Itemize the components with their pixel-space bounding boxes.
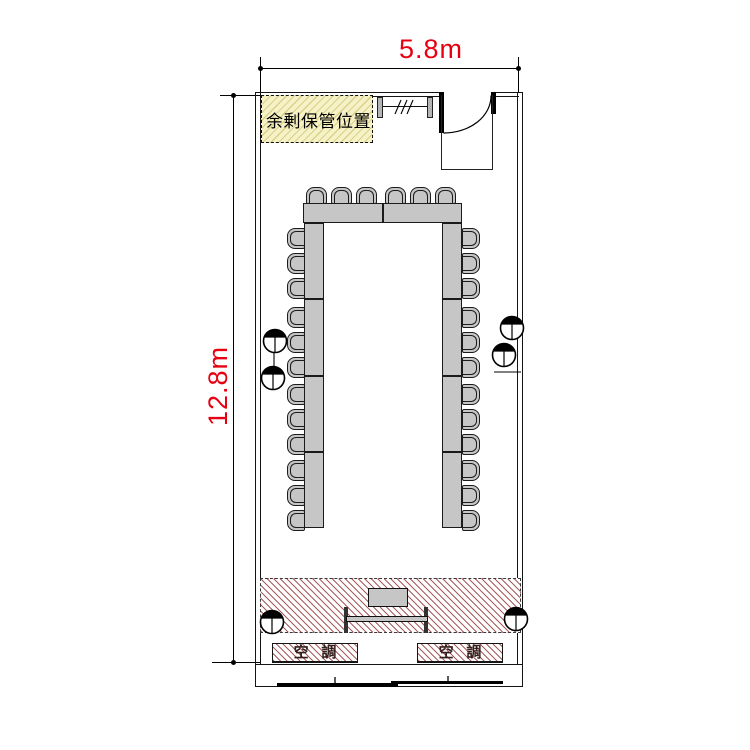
- plan-symbol-layer: [0, 0, 750, 750]
- outlet-icon: [261, 611, 284, 634]
- outlet-icon: [262, 367, 285, 390]
- outlet-icon: [505, 608, 528, 631]
- outlet-icon: [501, 317, 524, 340]
- door-swing-arc: [444, 96, 492, 134]
- whiteboard-marks-icon: [395, 100, 413, 114]
- outlet-icon: [264, 330, 287, 353]
- outlet-icon: [493, 344, 516, 367]
